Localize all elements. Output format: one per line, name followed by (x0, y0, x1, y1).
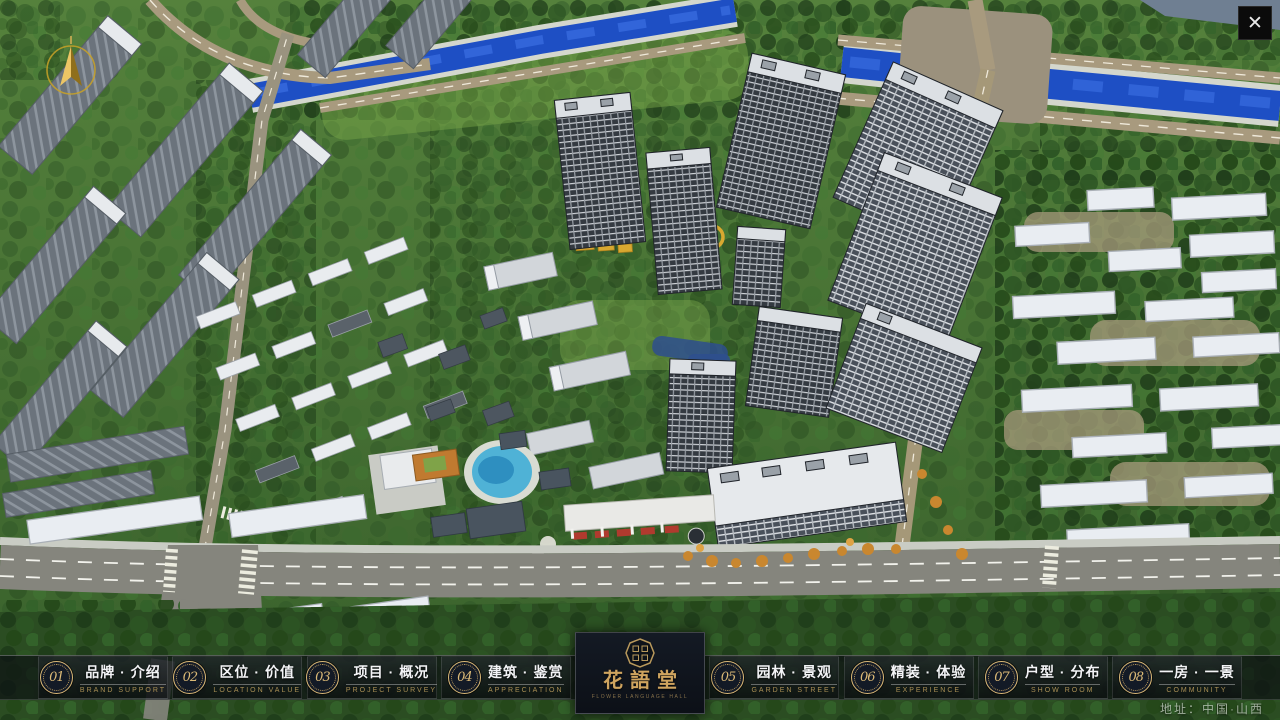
menu-label-zh: 区位 · 价值 (220, 662, 295, 682)
menu-label-zh: 项目 · 概况 (354, 662, 429, 682)
menu-label-zh: 建筑 · 鉴赏 (488, 662, 563, 682)
menu-item-location-value[interactable]: 02 区位 · 价值 LOCATION VALUE (172, 656, 302, 699)
menu-label-en: APPRECIATION (488, 684, 564, 694)
menu-label-zh: 一房 · 一景 (1159, 662, 1234, 682)
menu-number-badge: 01 (40, 661, 73, 694)
menu-item-brand-intro[interactable]: 01 品牌 · 介绍 BRAND SUPPORT (38, 656, 168, 699)
menu-label-zh: 精装 · 体验 (891, 662, 966, 682)
menu-item-architecture[interactable]: 04 建筑 · 鉴赏 APPRECIATION (441, 656, 571, 699)
logo-seal-icon (625, 638, 655, 668)
menu-number-badge: 06 (851, 661, 884, 694)
project-logo-panel[interactable]: 花語堂 FLOWER LANGUAGE HALL (575, 632, 705, 714)
menu-label-en: EXPERIENCE (891, 684, 966, 694)
menu-label-zh: 品牌 · 介绍 (85, 662, 160, 682)
menu-item-landscape[interactable]: 05 园林 · 景观 GARDEN STREET (709, 656, 839, 699)
menu-label-en: BRAND SUPPORT (80, 684, 166, 694)
menu-number-badge: 03 (306, 661, 339, 694)
site-plan-render (0, 0, 1280, 720)
project-logo-subtitle: FLOWER LANGUAGE HALL (592, 694, 688, 700)
app-window: ✕ 01 品牌 · 介绍 BRAND SUPPORT 02 区位 · 价值 LO… (0, 0, 1280, 720)
menu-item-room-view[interactable]: 08 一房 · 一景 COMMUNITY (1112, 656, 1242, 699)
menu-item-interior-experience[interactable]: 06 精装 · 体验 EXPERIENCE (844, 656, 974, 699)
menu-label-en: PROJECT SURVEY (346, 684, 437, 694)
menu-number-badge: 07 (985, 661, 1018, 694)
project-logo-title: 花語堂 (596, 668, 684, 692)
menu-number-badge: 04 (448, 661, 481, 694)
menu-item-project-overview[interactable]: 03 项目 · 概况 PROJECT SURVEY (307, 656, 437, 699)
menu-item-floorplan-distribution[interactable]: 07 户型 · 分布 SHOW ROOM (978, 656, 1108, 699)
menu-label-en: LOCATION VALUE (213, 684, 301, 694)
compass-north-icon (42, 34, 100, 98)
menu-number-badge: 08 (1119, 661, 1152, 694)
project-address: 地址：中国·山西 (1160, 700, 1264, 717)
menu-label-zh: 户型 · 分布 (1025, 662, 1100, 682)
menu-label-zh: 园林 · 景观 (757, 662, 832, 682)
menu-label-en: SHOW ROOM (1025, 684, 1100, 694)
menu-label-en: GARDEN STREET (751, 684, 837, 694)
menu-label-en: COMMUNITY (1159, 684, 1234, 694)
menu-number-badge: 02 (173, 661, 206, 694)
menu-number-badge: 05 (711, 661, 744, 694)
bottom-menu-bar: 01 品牌 · 介绍 BRAND SUPPORT 02 区位 · 价值 LOCA… (0, 655, 1280, 700)
close-button[interactable]: ✕ (1238, 6, 1272, 40)
